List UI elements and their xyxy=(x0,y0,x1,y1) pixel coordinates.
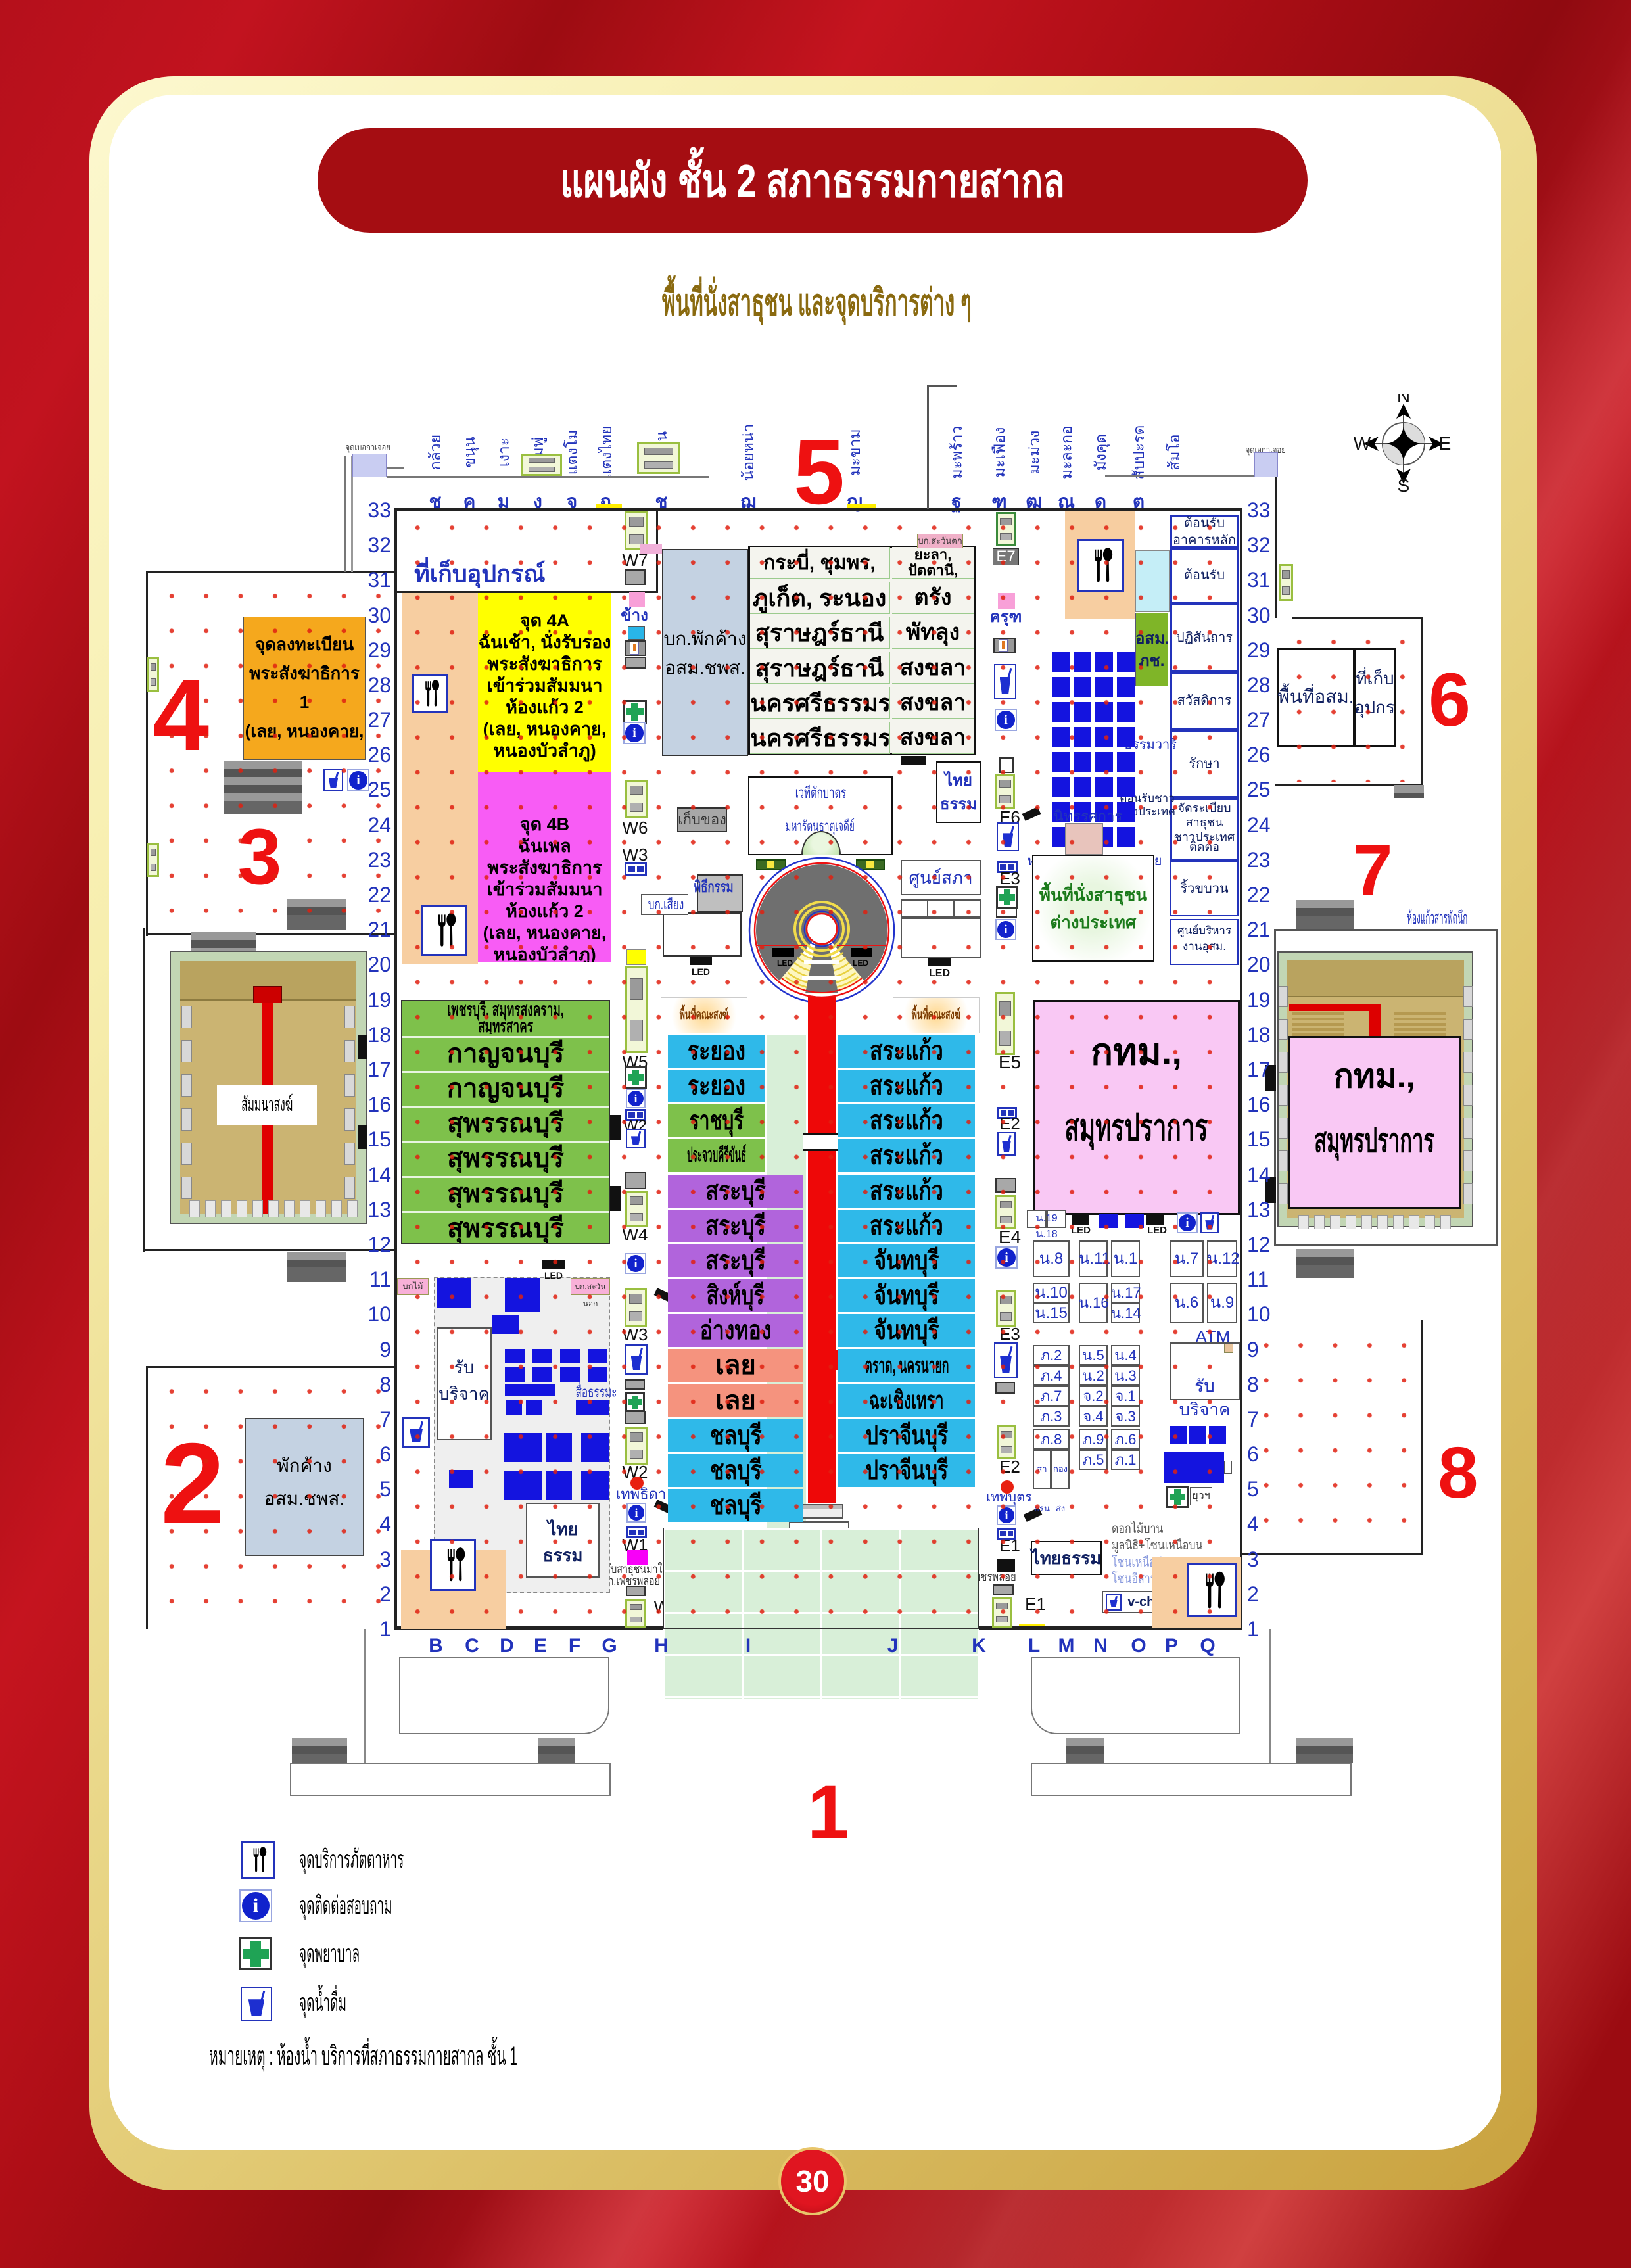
svg-text:E: E xyxy=(1439,433,1452,454)
svg-text:N: N xyxy=(1397,394,1410,406)
svg-text:W: W xyxy=(1354,433,1371,454)
svg-text:S: S xyxy=(1398,475,1410,493)
svg-text:LED: LED xyxy=(853,958,868,968)
svg-text:LED: LED xyxy=(777,958,793,968)
